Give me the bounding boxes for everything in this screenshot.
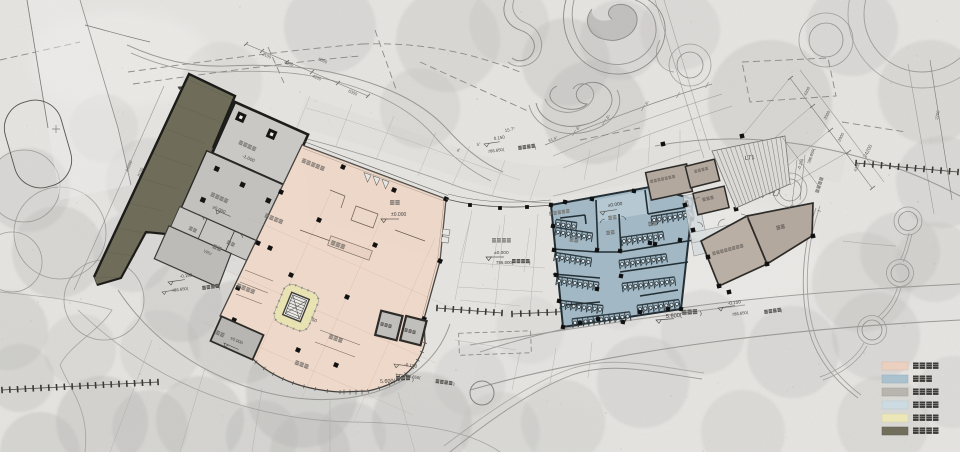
svg-text:5.600(: 5.600( [380,378,396,385]
svg-text:±0.000: ±0.000 [494,250,509,256]
svg-text:±0.000: ±0.000 [391,212,406,218]
svg-text:786.800(: 786.800( [496,260,514,265]
svg-text:LT1: LT1 [745,155,756,162]
